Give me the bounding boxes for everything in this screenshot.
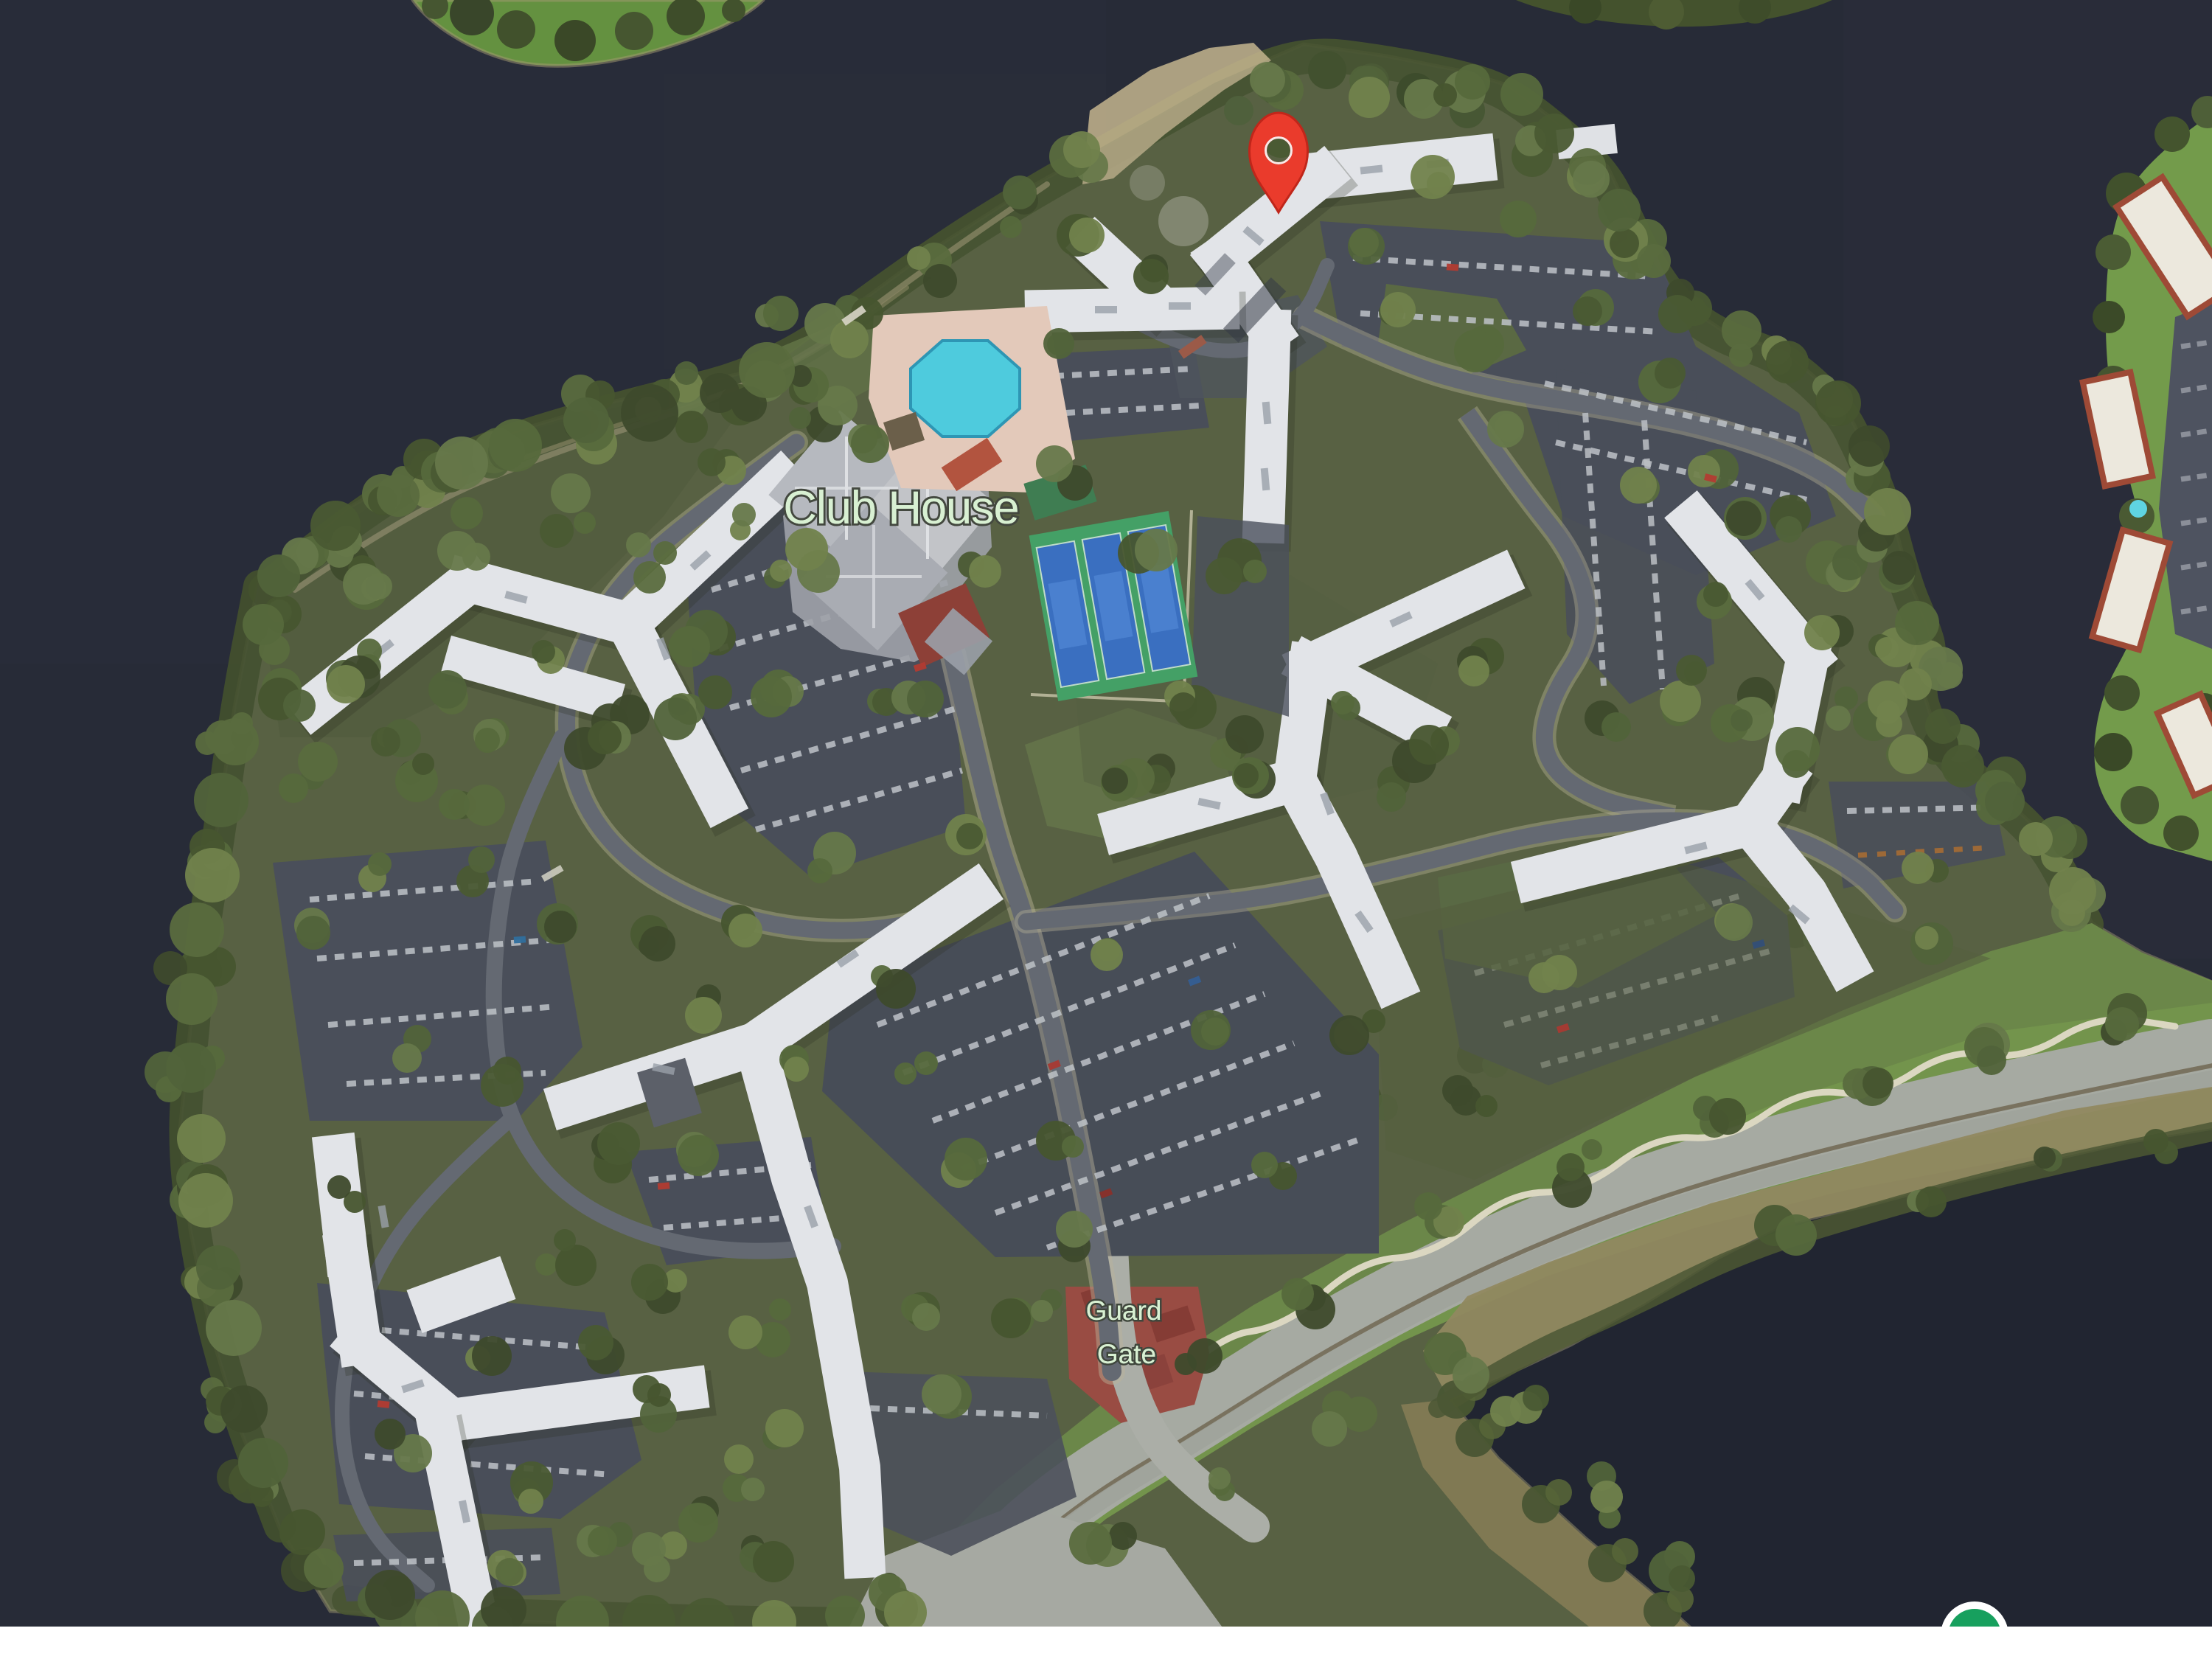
- svg-text:Gate: Gate: [1097, 1339, 1156, 1369]
- svg-text:Club House: Club House: [783, 482, 1018, 534]
- svg-text:Guard: Guard: [1086, 1295, 1162, 1326]
